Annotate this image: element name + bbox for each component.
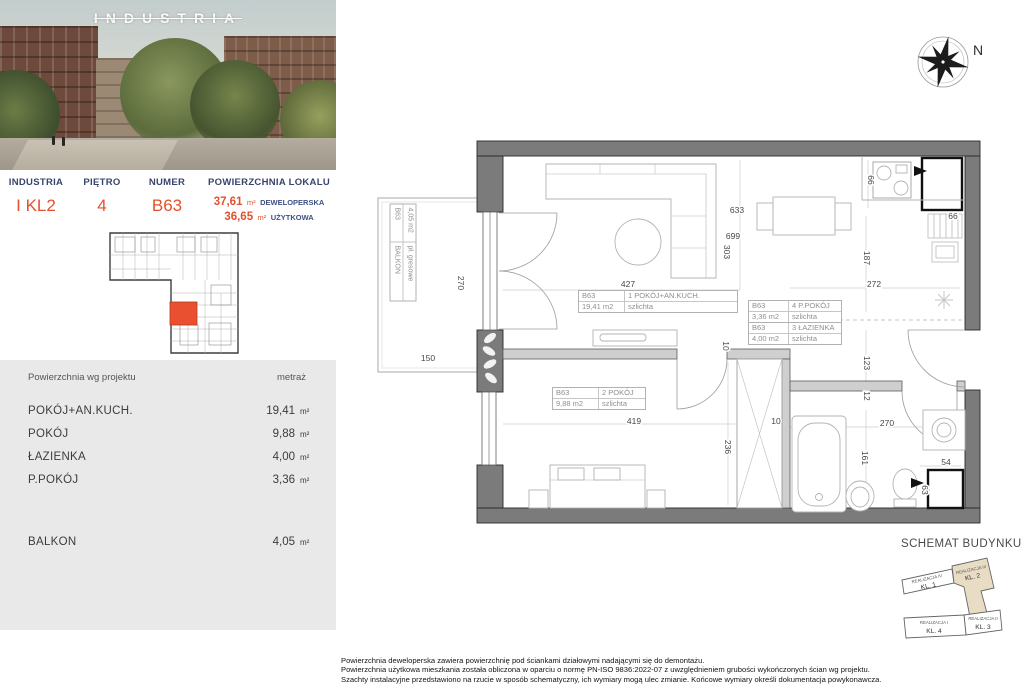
dim-10-wall: 10 bbox=[721, 341, 731, 351]
room-unit: m² bbox=[300, 476, 322, 485]
label-id: B63 bbox=[749, 323, 789, 334]
header-col-industria: INDUSTRIA I KL2 bbox=[0, 170, 72, 230]
header-value-number: B63 bbox=[152, 196, 182, 216]
header-col-floor: PIĘTRO 4 bbox=[72, 170, 132, 230]
room-label-bedroom: B63 2 POKÓJ 9,88 m2 szlichta bbox=[552, 387, 646, 410]
area-table: Powierzchnia wg projektu metraż POKÓJ+AN… bbox=[0, 360, 336, 630]
table-header-left: Powierzchnia wg projektu bbox=[28, 372, 136, 383]
table-row: POKÓJ+AN.KUCH. 19,41 m² bbox=[0, 405, 336, 417]
room-label-bath: B63 3 ŁAZIENKA 4,00 m2 szlichta bbox=[748, 322, 842, 345]
area-unit: m² bbox=[247, 198, 256, 207]
table-header-right: metraż bbox=[277, 372, 306, 383]
room-area: 4,00 bbox=[249, 451, 295, 463]
segment-label: REALIZACJA I bbox=[920, 620, 948, 625]
room-name: ŁAZIENKA bbox=[28, 451, 249, 463]
room-unit: m² bbox=[300, 538, 322, 547]
tv-sideboard bbox=[593, 330, 677, 346]
room-unit: m² bbox=[300, 430, 322, 439]
room-label-living: B63 1 POKÓJ+AN.KUCH. 19,41 m2 szlichta bbox=[578, 290, 738, 313]
dim-bath-w: 270 bbox=[880, 418, 894, 428]
nightstand bbox=[647, 490, 665, 508]
area-unit: m² bbox=[258, 213, 267, 222]
washing-machine bbox=[923, 410, 965, 450]
floor-plan: 270 150 427 633 699 303 66 66 187 272 10… bbox=[360, 115, 1024, 555]
room-area: 19,41 bbox=[249, 405, 295, 417]
north-label: N bbox=[973, 42, 983, 58]
dim-54: 54 bbox=[941, 457, 951, 467]
wardrobe bbox=[737, 359, 782, 508]
label-name: BALKON bbox=[391, 243, 403, 301]
round-table bbox=[615, 219, 661, 265]
person-silhouette bbox=[52, 136, 55, 145]
schematic-title: SCHEMAT BUDYNKU bbox=[901, 538, 1022, 550]
apartment-card-page: INDUSTRIA INDUSTRIA I KL2 PIĘTRO 4 NUMER… bbox=[0, 0, 1024, 700]
unit-header: INDUSTRIA I KL2 PIĘTRO 4 NUMER B63 POWIE… bbox=[0, 170, 336, 230]
header-label: PIĘTRO bbox=[83, 177, 120, 188]
label-area: 4,00 m2 bbox=[749, 334, 789, 344]
dim-419: 419 bbox=[627, 416, 641, 426]
dim-236: 236 bbox=[723, 440, 733, 454]
footnotes: Powierzchnia deweloperska zawiera powier… bbox=[341, 656, 1021, 684]
table-row: ŁAZIENKA 4,00 m² bbox=[0, 451, 336, 463]
room-area: 3,36 bbox=[249, 474, 295, 486]
ceiling-point-icon bbox=[935, 291, 953, 309]
area-value: 37,61 bbox=[214, 196, 243, 208]
sofa bbox=[546, 164, 716, 278]
segment-label: KL. 4 bbox=[926, 628, 942, 635]
header-label: INDUSTRIA bbox=[9, 177, 63, 188]
label-name: 3 ŁAZIENKA bbox=[789, 323, 841, 334]
table-row-balcony: BALKON 4,05 m² bbox=[0, 536, 336, 548]
footnote-line: Szachty instalacyjne przedstawiono na rz… bbox=[341, 675, 1021, 684]
tree bbox=[190, 60, 280, 150]
dim-123: 123 bbox=[862, 356, 872, 370]
dim-633: 633 bbox=[730, 205, 744, 215]
label-id: B63 bbox=[749, 301, 789, 312]
footnote-line: Powierzchnia deweloperska zawiera powier… bbox=[341, 656, 1021, 665]
label-area: 19,41 m2 bbox=[579, 302, 625, 312]
area-value: 36,65 bbox=[224, 211, 253, 223]
bedroom-door bbox=[677, 359, 727, 409]
dim-10-wall2: 10 bbox=[771, 416, 781, 426]
segment-kl1 bbox=[902, 569, 954, 594]
dim-66-shaft: 66 bbox=[948, 211, 958, 221]
fridge-unit bbox=[928, 214, 962, 262]
dim-balcony-h: 270 bbox=[456, 276, 466, 290]
dining-set bbox=[757, 197, 851, 235]
label-floor: szlichta bbox=[599, 399, 645, 409]
room-label-hall: B63 4 P.POKÓJ 3,36 m2 szlichta bbox=[748, 300, 842, 323]
dim-187: 187 bbox=[862, 251, 872, 265]
dim-161: 161 bbox=[860, 451, 870, 465]
label-floor: szlichta bbox=[625, 302, 737, 312]
dim-66-kitchen: 66 bbox=[866, 175, 876, 185]
dim-303: 303 bbox=[722, 245, 732, 259]
label-floor: szlichta bbox=[789, 312, 841, 322]
balcony-door-leaf bbox=[499, 271, 557, 329]
area-kind: DEWELOPERSKA bbox=[260, 198, 324, 207]
label-name: 1 POKÓJ+AN.KUCH. bbox=[625, 291, 737, 302]
compass-icon: N bbox=[905, 25, 1000, 100]
label-floor: pł. gresowe bbox=[403, 243, 416, 301]
segment-label: KL. 3 bbox=[975, 624, 991, 631]
room-name: POKÓJ+AN.KUCH. bbox=[28, 405, 249, 417]
label-id: B63 bbox=[553, 388, 599, 399]
label-floor: szlichta bbox=[789, 334, 841, 344]
segment-label: REALIZACJA II bbox=[968, 616, 997, 621]
shaft-bottom bbox=[928, 470, 963, 508]
area-table-header: Powierzchnia wg projektu metraż bbox=[0, 360, 336, 383]
photo-path bbox=[12, 140, 178, 170]
toilet bbox=[893, 469, 917, 507]
mini-floor-plan bbox=[85, 225, 255, 360]
dim-balcony-w: 150 bbox=[421, 353, 435, 363]
room-name: P.POKÓJ bbox=[28, 474, 249, 486]
balcony-door-leaf bbox=[499, 213, 557, 271]
person-silhouette bbox=[62, 137, 65, 146]
area-usable: 36,65 m² UŻYTKOWA bbox=[224, 209, 313, 224]
header-label: POWIERZCHNIA LOKALU bbox=[208, 177, 330, 188]
dim-12: 12 bbox=[862, 391, 872, 401]
dim-699: 699 bbox=[726, 231, 740, 241]
label-id: B63 bbox=[391, 205, 403, 243]
header-col-area: POWIERZCHNIA LOKALU 37,61 m² DEWELOPERSK… bbox=[202, 170, 336, 230]
mini-highlighted-unit bbox=[170, 302, 197, 325]
room-unit: m² bbox=[300, 453, 322, 462]
room-name: POKÓJ bbox=[28, 428, 249, 440]
label-area: 4,05 m2 bbox=[403, 205, 416, 243]
dim-63: 63 bbox=[920, 485, 930, 495]
dim-living-w: 427 bbox=[621, 279, 635, 289]
label-area: 3,36 m2 bbox=[749, 312, 789, 322]
label-name: 4 P.POKÓJ bbox=[789, 301, 841, 312]
bathtub bbox=[792, 416, 846, 512]
compass-star bbox=[912, 31, 974, 93]
label-name: 2 POKÓJ bbox=[599, 388, 645, 399]
area-kind: UŻYTKOWA bbox=[271, 213, 314, 222]
washbasin bbox=[846, 481, 874, 511]
nightstand bbox=[529, 490, 548, 508]
bed bbox=[529, 465, 665, 508]
table-row: P.POKÓJ 3,36 m² bbox=[0, 474, 336, 486]
room-name: BALKON bbox=[28, 536, 249, 548]
entrance-door bbox=[908, 330, 965, 387]
label-id: B63 bbox=[579, 291, 625, 302]
header-value-floor: 4 bbox=[97, 196, 106, 216]
room-label-balcony: 4,05 m2 pł. gresowe B63 BALKON bbox=[390, 204, 417, 302]
table-row: POKÓJ 9,88 m² bbox=[0, 428, 336, 440]
building-schematic: REALIZACJA IV KL. 1 REALIZACJA III KL. 2… bbox=[888, 554, 1024, 648]
building-photo: INDUSTRIA bbox=[0, 0, 336, 170]
dim-272: 272 bbox=[867, 279, 881, 289]
label-area: 9,88 m2 bbox=[553, 399, 599, 409]
footnote-line: Powierzchnia użytkowa mieszkania została… bbox=[341, 665, 1021, 674]
header-value-building: I KL2 bbox=[16, 196, 56, 216]
header-label: NUMER bbox=[149, 177, 185, 188]
room-unit: m² bbox=[300, 407, 322, 416]
industria-logo: INDUSTRIA bbox=[0, 10, 336, 26]
header-col-number: NUMER B63 bbox=[132, 170, 202, 230]
room-area: 9,88 bbox=[249, 428, 295, 440]
room-area: 4,05 bbox=[249, 536, 295, 548]
shaft-top bbox=[922, 158, 962, 210]
